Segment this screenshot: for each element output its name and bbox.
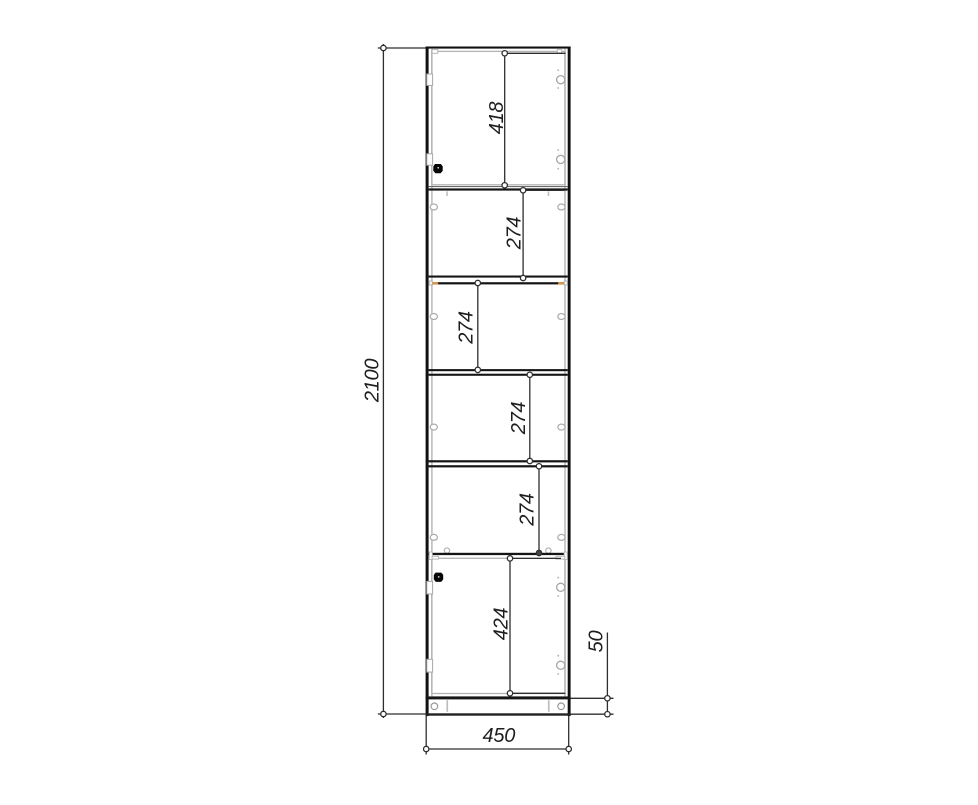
- svg-text:418: 418: [486, 102, 508, 135]
- svg-text:274: 274: [508, 402, 530, 436]
- svg-text:50: 50: [586, 631, 608, 653]
- svg-text:450: 450: [483, 725, 516, 747]
- svg-text:274: 274: [503, 217, 525, 251]
- svg-text:274: 274: [517, 493, 539, 527]
- svg-text:424: 424: [491, 608, 513, 641]
- svg-text:2100: 2100: [361, 359, 383, 403]
- svg-text:274: 274: [456, 311, 478, 345]
